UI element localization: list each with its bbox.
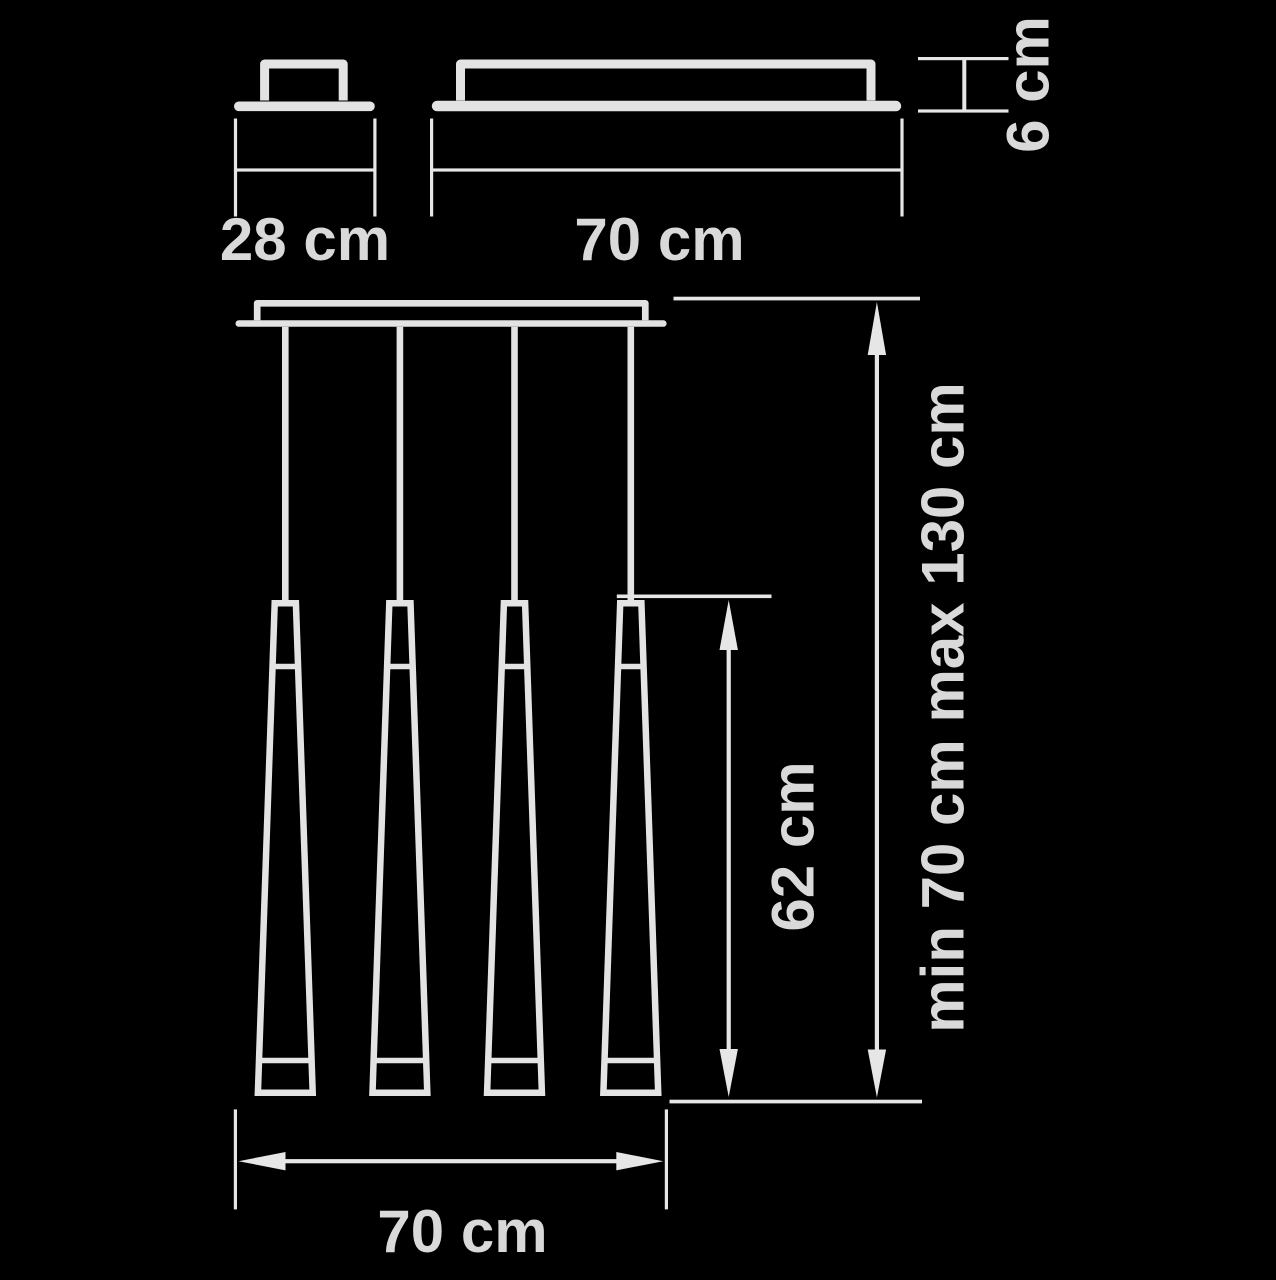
svg-text:62 cm: 62 cm: [760, 761, 827, 931]
svg-text:6 cm: 6 cm: [995, 16, 1062, 153]
svg-text:70 cm: 70 cm: [574, 206, 744, 273]
svg-text:min 70 cm max 130 cm: min 70 cm max 130 cm: [910, 382, 977, 1032]
svg-text:28 cm: 28 cm: [220, 206, 390, 273]
svg-text:70 cm: 70 cm: [377, 1198, 547, 1265]
